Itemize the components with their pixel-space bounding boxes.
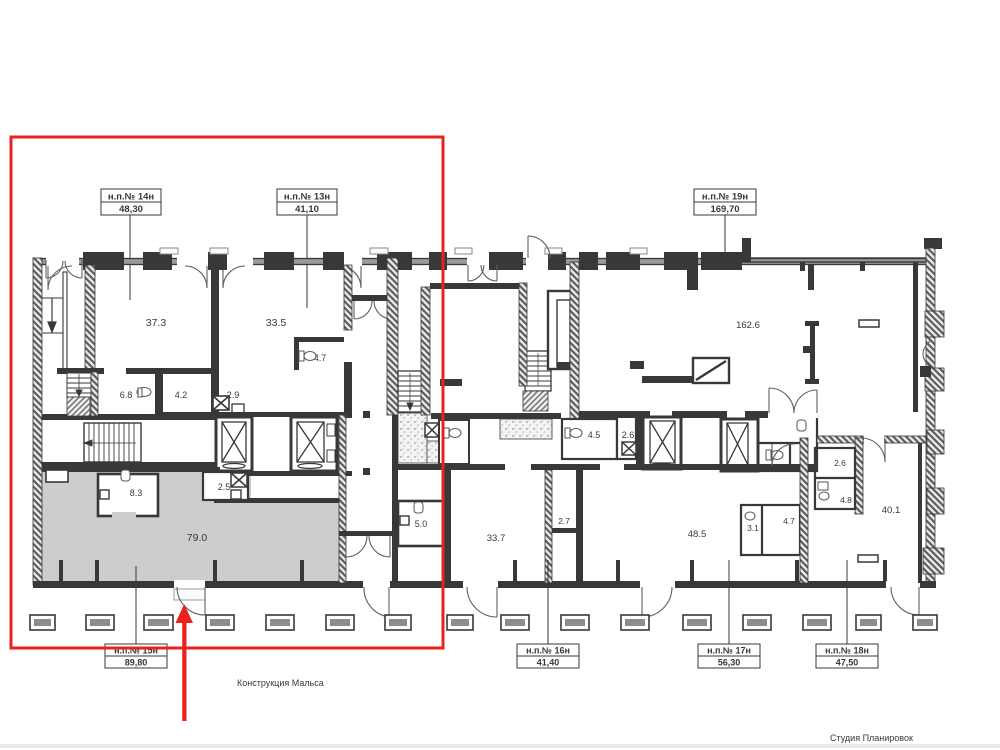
svg-text:162.6: 162.6 (736, 320, 760, 331)
svg-text:2.7: 2.7 (558, 516, 570, 526)
svg-text:4.5: 4.5 (588, 430, 601, 440)
svg-text:48,30: 48,30 (119, 204, 143, 215)
svg-text:37.3: 37.3 (146, 317, 167, 329)
svg-text:2.5: 2.5 (218, 482, 231, 492)
svg-text:169,70: 169,70 (710, 204, 739, 215)
svg-text:33.7: 33.7 (487, 533, 506, 544)
svg-text:41,10: 41,10 (295, 204, 319, 215)
svg-text:4.7: 4.7 (783, 516, 795, 526)
svg-text:79.0: 79.0 (187, 532, 208, 544)
svg-text:41,40: 41,40 (537, 658, 560, 668)
svg-text:8.3: 8.3 (130, 488, 143, 498)
svg-text:2.6: 2.6 (622, 430, 635, 440)
svg-text:5.0: 5.0 (415, 519, 428, 529)
svg-text:н.п.№ 14н: н.п.№ 14н (108, 192, 155, 203)
svg-text:Студия Планировок: Студия Планировок (830, 733, 913, 743)
svg-text:н.п.№ 18н: н.п.№ 18н (825, 646, 869, 656)
svg-text:н.п.№ 13н: н.п.№ 13н (284, 192, 331, 203)
svg-text:40.1: 40.1 (882, 505, 901, 516)
svg-text:Конструкция Мальса: Конструкция Мальса (237, 678, 324, 688)
svg-text:56,30: 56,30 (718, 658, 741, 668)
svg-text:н.п.№ 19н: н.п.№ 19н (702, 192, 749, 203)
svg-text:6.8: 6.8 (120, 390, 133, 400)
svg-text:4.2: 4.2 (175, 390, 188, 400)
svg-text:4.8: 4.8 (840, 495, 852, 505)
svg-text:н.п.№ 17н: н.п.№ 17н (707, 646, 751, 656)
svg-text:47,50: 47,50 (836, 658, 859, 668)
svg-text:33.5: 33.5 (266, 317, 287, 329)
svg-text:3.1: 3.1 (747, 523, 759, 533)
svg-text:н.п.№ 16н: н.п.№ 16н (526, 646, 570, 656)
svg-text:2.6: 2.6 (834, 458, 846, 468)
svg-text:89,80: 89,80 (125, 658, 148, 668)
svg-text:48.5: 48.5 (688, 529, 707, 540)
